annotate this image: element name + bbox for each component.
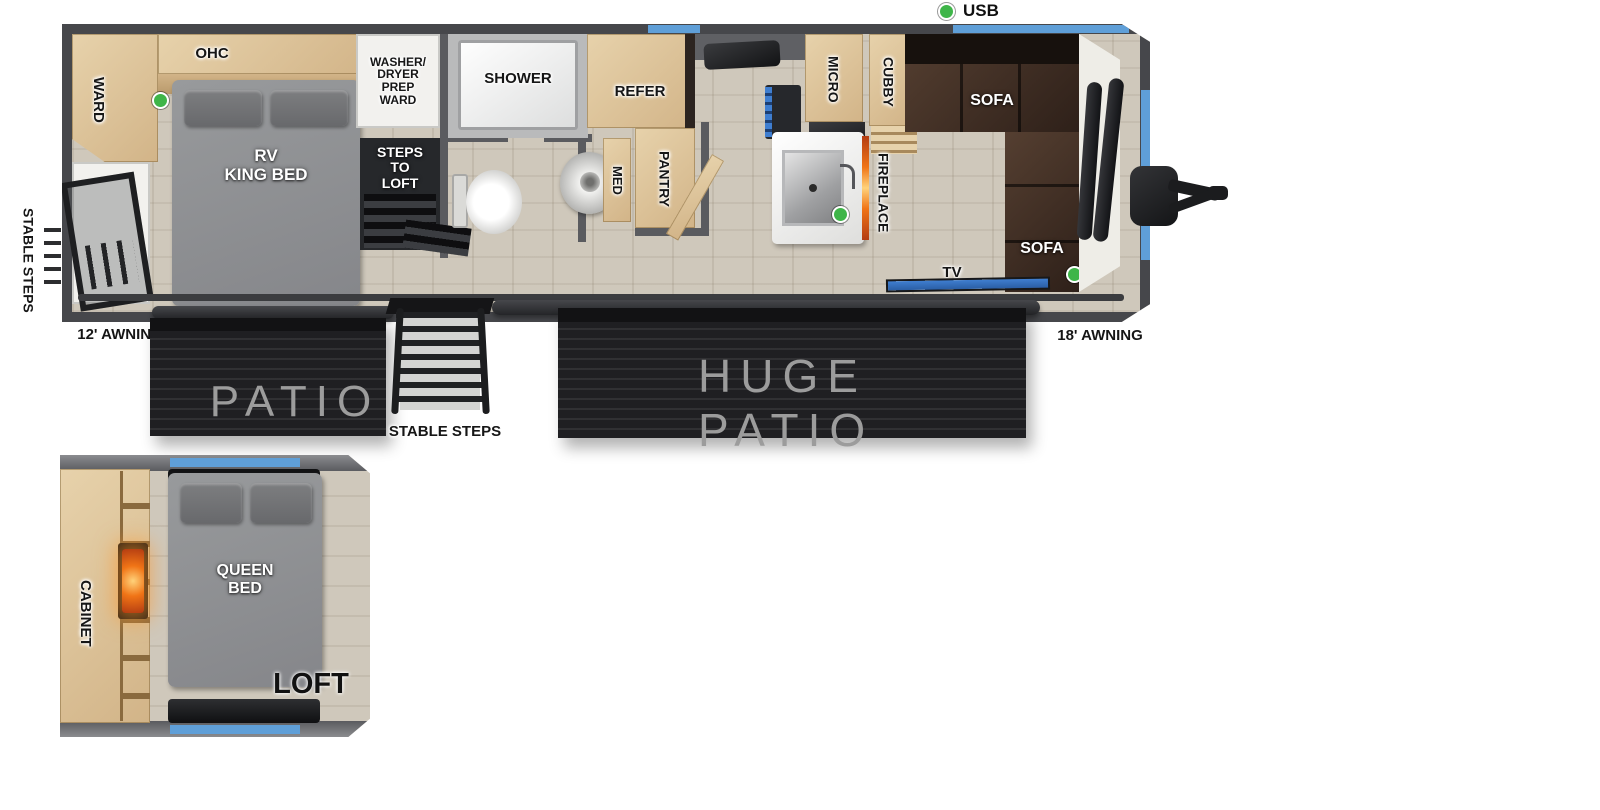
toilet-bowl — [466, 170, 522, 234]
bath-sink-drain — [580, 172, 600, 192]
ward-label: WARD — [80, 50, 116, 150]
usb-dot-icon — [938, 3, 955, 20]
trailer-hitch — [1130, 138, 1225, 238]
queen-pillow-left — [180, 483, 242, 523]
washer-dryer-label: WASHER/ DRYER PREP WARD — [360, 40, 436, 122]
usb-legend-label: USB — [963, 1, 999, 21]
refer-edge — [685, 34, 695, 128]
hitch-coupler — [1208, 186, 1228, 200]
queen-pillow-right — [250, 483, 312, 523]
steps-treads — [396, 312, 484, 410]
loft-window-top — [170, 458, 300, 467]
floorplan-page: USB STABLE STEPS WARD OHC RV KING BED WA… — [0, 0, 1600, 810]
med-label: MED — [605, 144, 629, 216]
huge-patio-deck-lip — [558, 308, 1026, 322]
stable-steps-middle — [392, 298, 492, 420]
bed-pillow-right — [270, 90, 348, 126]
cubby-label: CUBBY — [874, 42, 902, 122]
stove-burners — [765, 87, 772, 137]
patio-deck-lip — [150, 318, 386, 331]
main-floorplan: WARD OHC RV KING BED WASHER/ DRYER PREP … — [62, 24, 1150, 322]
queen-bed-label: QUEEN BED — [180, 557, 310, 603]
huge-patio-deck: HUGE PATIO — [558, 308, 1026, 438]
loft-label: LOFT — [256, 667, 366, 701]
loft-cabinet-label: CABINET — [72, 547, 98, 679]
sofa-front-label: SOFA — [1005, 238, 1079, 260]
refer-label: REFER — [600, 82, 680, 102]
island-sink-drain — [809, 184, 817, 192]
shower-label: SHOWER — [468, 68, 568, 90]
propane-cover — [1130, 166, 1178, 226]
sofa-top-label: SOFA — [952, 90, 1032, 112]
loft-window-bottom — [170, 725, 300, 734]
refer-cabinet — [587, 34, 695, 128]
sofa-top-back — [905, 34, 1079, 64]
entry-door-rails — [85, 239, 139, 290]
usb-legend: USB — [938, 1, 999, 21]
bed-pillow-left — [184, 90, 262, 126]
usb-dot-island — [832, 206, 849, 223]
usb-dot-bedroom — [152, 92, 169, 109]
loft-bolster-bottom — [168, 699, 320, 723]
sofa-cushion-line — [1005, 184, 1079, 187]
window-top-1 — [648, 25, 700, 33]
patio-deck: PATIO — [150, 318, 386, 436]
steps-to-loft-label: STEPS TO LOFT — [364, 142, 436, 194]
fireplace-label: FIREPLACE — [870, 138, 896, 248]
loft-floorplan: CABINET QUEEN BED LOFT — [60, 455, 370, 737]
huge-patio-label: HUGE PATIO — [698, 376, 1018, 430]
left-entry-steps — [44, 228, 61, 292]
ohc-label: OHC — [172, 44, 252, 64]
loft-fireplace — [122, 549, 144, 613]
pantry-label: PANTRY — [650, 134, 678, 224]
window-top-2 — [953, 25, 1129, 33]
rv-king-bed-label: RV KING BED — [182, 142, 350, 190]
range-hood — [703, 40, 780, 70]
island-faucet — [840, 164, 855, 189]
stable-steps-left-label: STABLE STEPS — [16, 205, 40, 315]
awning-right-label: 18' AWNING — [1040, 327, 1160, 345]
micro-label: MICRO — [818, 40, 848, 118]
patio-label: PATIO — [210, 376, 380, 428]
island-fireplace-strip — [862, 136, 869, 240]
stable-steps-mid-label: STABLE STEPS — [385, 423, 505, 441]
